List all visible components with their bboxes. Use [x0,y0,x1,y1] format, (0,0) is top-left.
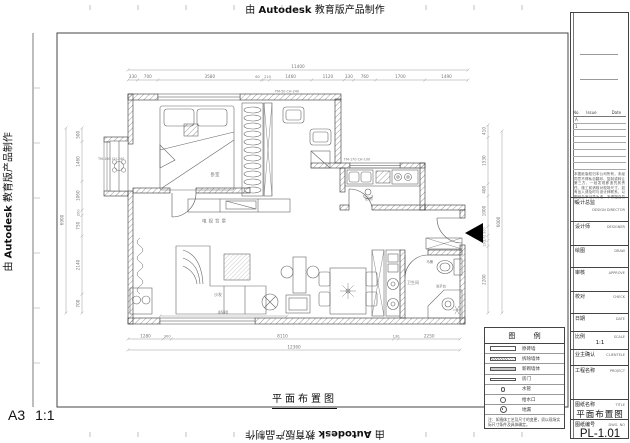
legend-box: 图 例 原砖墙 拆除墙体 新砌墙体 房门 水管 给水口 地漏 注：如墙体工艺及尺… [484,327,565,429]
revision-table: No. Issue Date A 1 [573,109,626,170]
svg-text:2200: 2200 [482,274,487,285]
title-block: No. Issue Date A 1 本图纸版权归本公司所有，未经同意不得私自翻… [570,12,629,439]
drawing-number-value: PL-1.01 [575,428,625,440]
room-label-bedroom: 卧室 [211,171,220,178]
field-draw: 绘图 DRAW [571,245,628,267]
svg-text:1120: 1120 [323,74,334,79]
tv-cabinet [188,199,290,212]
hall-furniture [283,107,331,168]
svg-text:750: 750 [76,221,81,229]
signature-line [580,79,618,80]
svg-text:1490: 1490 [441,74,452,79]
room-label-bath: 卫生间 [407,279,419,285]
svg-text:200: 200 [77,209,81,217]
legend-swatch-door [488,378,518,381]
bedroom-furniture [160,103,272,196]
legend-swatch-water-pipe [488,387,518,392]
legend-item: 原砖墙 [485,344,564,354]
dining-furniture [319,250,400,316]
legend-item: 地漏 [485,405,564,415]
svg-text:760: 760 [361,74,369,79]
svg-text:1530: 1530 [482,155,487,166]
svg-text:2140: 2140 [76,259,81,270]
revision-row [573,137,626,144]
drawing-title: 平面布置图 [272,390,337,409]
svg-text:1280: 1280 [140,334,151,339]
revision-row [573,150,626,157]
svg-text:1460: 1460 [285,74,296,79]
svg-text:190: 190 [483,240,487,246]
label-toilet: 马桶 [426,259,433,264]
legend-swatch-water-inlet [488,397,518,403]
window-tag: TM-170 CH-100 [343,158,370,162]
sheet-format: A3 [8,407,25,423]
doors [172,189,462,278]
walls [104,94,465,324]
svg-text:1460: 1460 [76,156,81,167]
signature-line [580,54,618,55]
svg-text:6000: 6000 [496,216,501,227]
legend-item: 给水口 [485,395,564,405]
field-client-confirm: 业主确认 CLIENTELE [571,349,628,365]
dim-top-overall: 11400 [291,64,305,69]
plot-format-scale: A31:1 [8,407,65,423]
revision-row [573,143,626,150]
svg-text:410: 410 [482,127,487,135]
svg-text:400: 400 [482,185,487,193]
legend-swatch-brick-wall [488,346,518,351]
svg-text:60: 60 [255,75,260,79]
svg-text:330: 330 [129,74,137,79]
field-check: 校对 CHECK [571,291,628,313]
svg-text:700: 700 [76,299,81,307]
legend-item: 拆除墙体 [485,354,564,364]
svg-text:330: 330 [345,74,353,79]
dim-bottom-overall: 12360 [287,345,301,350]
room-label-kitchen: 厨房 [365,195,373,201]
cad-floorplan-sheet: { "stamp": {"prefix": "由", "brand": "Aut… [0,0,630,442]
window-tag: TM-50 CH-240 [274,90,299,94]
legend-note: 注：如墙体工艺及尺寸的变更，须以现场实际尺寸条件及具体确定。 [485,415,564,429]
legend-item: 新砌墙体 [485,364,564,374]
scale-value: 1:1 [575,340,625,346]
field-scale: 比例 SCALE 1:1 [571,331,628,349]
svg-text:130: 130 [393,335,401,339]
dim-sofa: 4680 [218,310,229,315]
svg-text:1700: 1700 [395,74,406,79]
window-tag: TM-160 CH-240 [97,157,124,161]
field-project-name: 工程名称 PROJECT [571,365,628,399]
svg-text:700: 700 [144,74,152,79]
svg-text:8110: 8110 [277,334,288,339]
svg-text:1060: 1060 [76,190,81,201]
legend-swatch-demolished-wall [488,357,518,362]
svg-text:3580: 3580 [204,74,215,79]
field-designer: 设计师 DESIGNER [571,221,628,245]
svg-text:2250: 2250 [424,334,435,339]
svg-text:300: 300 [483,227,487,233]
revision-row: 1 [573,124,626,131]
room-label-sofa: 沙发 [214,291,222,297]
legend-item: 房门 [485,375,564,385]
legend-swatch-new-wall [488,367,518,372]
sheet-scale: 1:1 [35,407,54,423]
field-drawing-number: 图纸编号 DWG. NO PL-1.01 [571,419,628,438]
revision-header: No. Issue Date [573,109,626,117]
svg-text:6900: 6900 [60,214,65,225]
svg-text:210: 210 [264,75,272,79]
kitchen-furniture [345,168,420,199]
svg-text:500: 500 [76,130,81,138]
living-room-furniture [130,238,319,314]
legend-swatch-floor-drain [488,406,518,413]
revision-row [573,157,626,164]
svg-text:1000: 1000 [482,205,487,216]
label-basin: 洗手台 [436,284,447,289]
legend-item: 水管 [485,385,564,395]
revision-row [573,130,626,137]
legend-title: 图 例 [485,328,564,344]
revision-row [573,163,626,170]
svg-text:300: 300 [164,335,172,339]
entry-arrow [465,223,483,243]
field-date: 日期 DATE [571,313,628,331]
field-approve: 审核 APPROVE [571,267,628,291]
field-design-director: 设计总监 DESIGN DIRECTOR [571,197,628,221]
room-label-tv-wall: 电视背景 [202,218,228,225]
field-drawing-name: 图纸名称 TITLE 平面布置图 [571,399,628,419]
revision-row: A [573,117,626,124]
